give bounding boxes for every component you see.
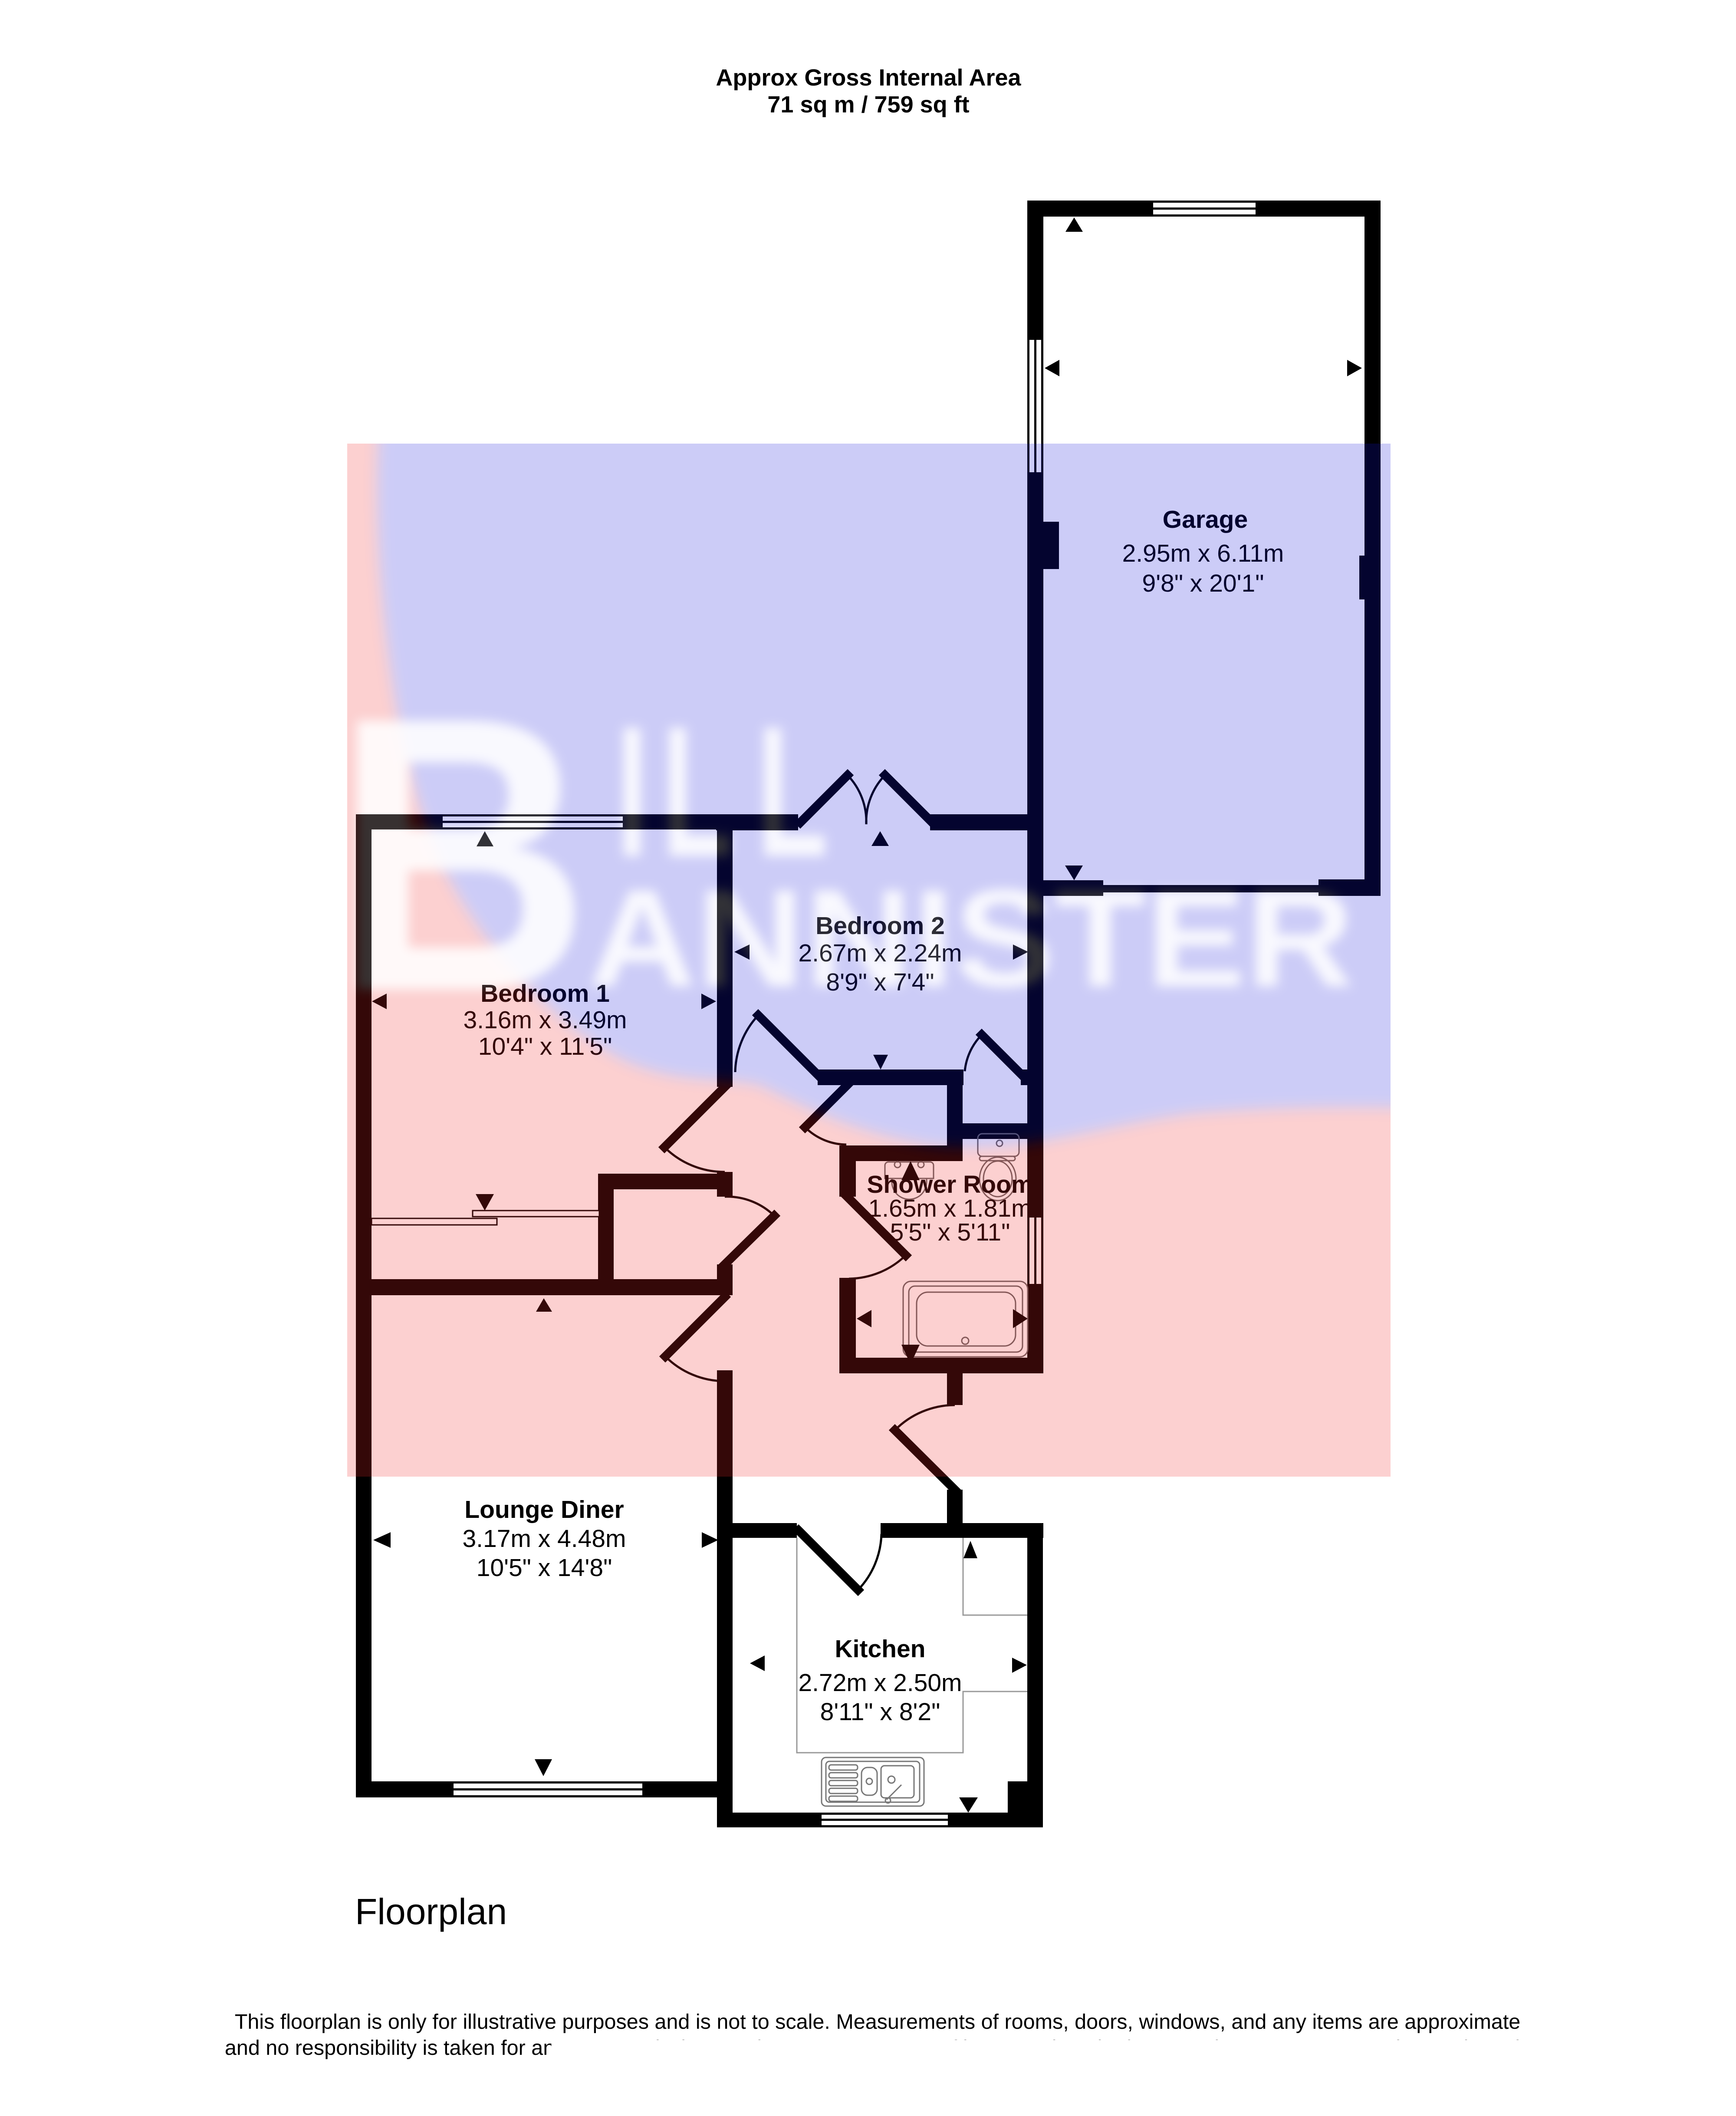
svg-text:may not look like the real ite: may not look like the real items. Made w…	[581, 2062, 1160, 2085]
svg-text:Floorplan: Floorplan	[355, 1891, 507, 1932]
svg-text:This floorplan is only for ill: This floorplan is only for illustrative …	[235, 2010, 1521, 2034]
svg-text:and no responsibility is taken: and no responsibility is taken for any e…	[225, 2036, 1520, 2060]
svg-text:71 sq m / 759 sq ft: 71 sq m / 759 sq ft	[767, 92, 969, 118]
svg-text:Approx Gross Internal Area: Approx Gross Internal Area	[716, 65, 1021, 91]
